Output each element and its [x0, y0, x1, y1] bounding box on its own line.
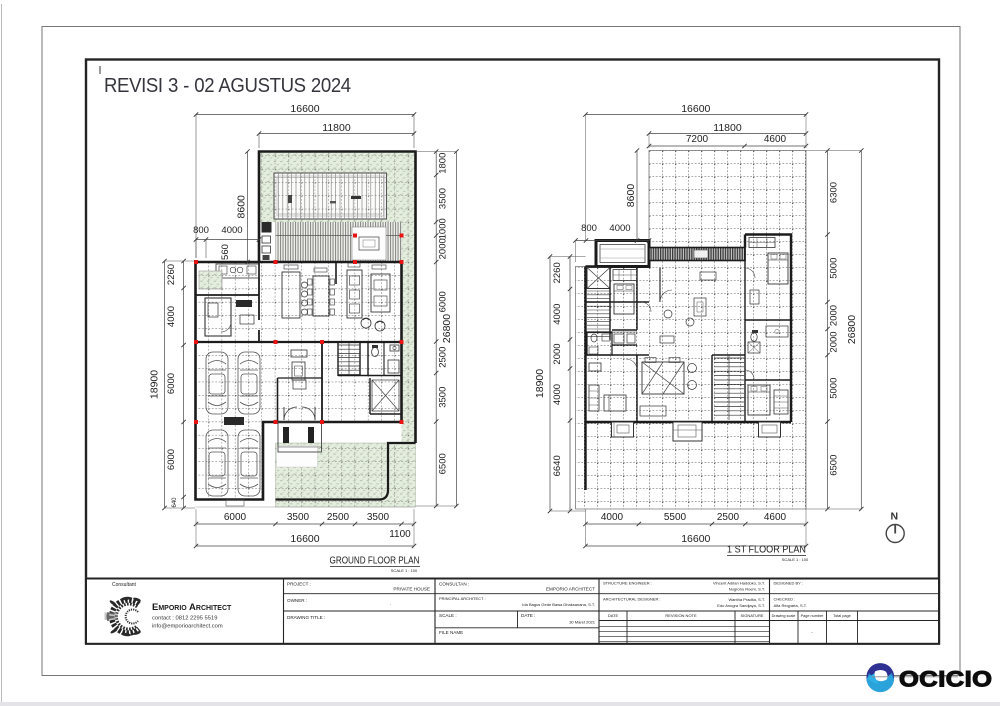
svg-text:16600: 16600	[681, 533, 710, 545]
svg-text:Nugroho Roem, S.T.: Nugroho Roem, S.T.	[729, 587, 765, 592]
svg-text:Ida Bagus Gede Bawa Dhaksanana: Ida Bagus Gede Bawa Dhaksanana, S.T.	[522, 602, 595, 607]
svg-text:SCALE :: SCALE :	[439, 613, 457, 618]
svg-text:1000: 1000	[438, 218, 449, 239]
svg-text:560: 560	[220, 244, 231, 260]
svg-text:Total page: Total page	[833, 614, 851, 618]
svg-text:18900: 18900	[149, 370, 161, 399]
svg-text:GROUND FLOOR PLAN: GROUND FLOOR PLAN	[330, 555, 420, 567]
svg-text:4000: 4000	[221, 225, 242, 236]
svg-text:info@emporioarchitect.com: info@emporioarchitect.com	[152, 624, 223, 630]
svg-text:5500: 5500	[664, 512, 687, 523]
svg-text:11800: 11800	[713, 122, 742, 134]
svg-text:ARCHITECTURAL DESIGNER :: ARCHITECTURAL DESIGNER :	[603, 597, 661, 602]
svg-text:SCALE 1 : 100: SCALE 1 : 100	[391, 568, 418, 573]
svg-text:6640: 6640	[552, 455, 563, 476]
svg-text:7200: 7200	[686, 134, 709, 145]
svg-text:Wantha Pradita, S.T.: Wantha Pradita, S.T.	[728, 597, 765, 602]
svg-text:3500: 3500	[438, 188, 449, 209]
svg-text:6000: 6000	[166, 449, 177, 470]
svg-text:800: 800	[193, 225, 209, 236]
svg-text:OWNER :: OWNER :	[287, 598, 307, 603]
svg-text:2260: 2260	[552, 262, 563, 283]
svg-text:.: .	[774, 587, 775, 592]
svg-text:1800: 1800	[438, 153, 449, 174]
svg-text:FILE NAME: FILE NAME	[439, 630, 463, 635]
svg-text:STRUCTURE ENGINEER :: STRUCTURE ENGINEER :	[603, 581, 652, 586]
svg-text:EMPORIO ARCHITECT: EMPORIO ARCHITECT	[546, 587, 595, 592]
svg-text:N: N	[891, 511, 899, 523]
svg-text:PRINCIPAL ARCHITECT :: PRINCIPAL ARCHITECT :	[439, 596, 486, 601]
svg-text:5000: 5000	[829, 378, 840, 399]
svg-text:3500: 3500	[367, 512, 390, 523]
svg-text:Drawing scale: Drawing scale	[772, 614, 796, 618]
svg-text:2000: 2000	[438, 238, 449, 259]
svg-text:Edo Anugra Sandjaya, S.T.: Edo Anugra Sandjaya, S.T.	[717, 603, 765, 608]
svg-text:8600: 8600	[625, 184, 637, 208]
svg-text:Vincent Adrian Haddoko, S.T.: Vincent Adrian Haddoko, S.T.	[713, 581, 765, 586]
svg-text:4000: 4000	[609, 223, 630, 234]
svg-text:6500: 6500	[829, 455, 840, 476]
svg-text:16600: 16600	[681, 103, 710, 115]
svg-text:2500: 2500	[717, 512, 740, 523]
svg-text:PROJECT :: PROJECT :	[287, 582, 311, 587]
svg-text:DRAWING TITLE :: DRAWING TITLE :	[287, 615, 325, 620]
svg-text:CHECKED :: CHECKED :	[774, 597, 796, 602]
svg-text:CONSULTAN :: CONSULTAN :	[439, 582, 469, 587]
svg-text:DATE: DATE	[608, 613, 619, 618]
svg-text:3500: 3500	[438, 387, 449, 408]
svg-text:PRIVATE HOUSE: PRIVATE HOUSE	[393, 587, 430, 592]
svg-text:4600: 4600	[764, 134, 787, 145]
svg-text:4600: 4600	[764, 512, 787, 523]
svg-text:1 ST FLOOR PLAN: 1 ST FLOOR PLAN	[727, 545, 806, 556]
svg-text:26800: 26800	[441, 314, 453, 343]
svg-text:2500: 2500	[327, 512, 350, 523]
svg-text:16600: 16600	[290, 103, 319, 115]
svg-text:SCALE 1 : 100: SCALE 1 : 100	[782, 557, 809, 562]
svg-text:640: 640	[172, 497, 178, 508]
svg-text:2000: 2000	[829, 331, 840, 352]
svg-text:contact : 0812 2295 5519: contact : 0812 2295 5519	[152, 616, 217, 622]
svg-text:6500: 6500	[438, 453, 449, 474]
svg-text:1100: 1100	[389, 529, 411, 540]
svg-text:4000: 4000	[166, 306, 177, 327]
svg-text:5000: 5000	[829, 258, 840, 279]
svg-text:8600: 8600	[236, 195, 248, 219]
svg-text:4000: 4000	[601, 512, 624, 523]
svg-text:800: 800	[581, 223, 597, 234]
svg-text:6000: 6000	[166, 373, 177, 394]
svg-text:OCICIO: OCICIO	[899, 667, 992, 692]
svg-text:18900: 18900	[534, 369, 546, 398]
svg-text:DATE :: DATE :	[521, 613, 535, 618]
svg-text:DESIGNED BY :: DESIGNED BY :	[774, 581, 804, 586]
svg-text:16600: 16600	[290, 533, 319, 545]
svg-text:REVISI 3 - 02 AGUSTUS 2024: REVISI 3 - 02 AGUSTUS 2024	[104, 75, 351, 97]
svg-text:6300: 6300	[829, 182, 840, 203]
svg-text:6000: 6000	[224, 512, 247, 523]
svg-text:2500: 2500	[438, 347, 449, 368]
svg-text:3500: 3500	[287, 512, 310, 523]
svg-text:Consultant: Consultant	[112, 582, 137, 588]
svg-text:Alfa Reqyarta, S.T.: Alfa Reqyarta, S.T.	[774, 603, 807, 608]
svg-text:2000: 2000	[552, 343, 563, 364]
svg-text:11800: 11800	[322, 122, 351, 134]
svg-text:REVISION NOTE: REVISION NOTE	[665, 613, 697, 618]
svg-text:6000: 6000	[438, 291, 449, 312]
svg-text:4000: 4000	[552, 304, 563, 325]
svg-text:26800: 26800	[846, 315, 858, 344]
svg-text:Page number: Page number	[801, 614, 825, 618]
svg-text:30 Maret 2021: 30 Maret 2021	[569, 620, 596, 625]
svg-text:2000: 2000	[829, 305, 840, 326]
svg-text:.: .	[390, 601, 391, 606]
svg-text:SIGNATURE: SIGNATURE	[740, 613, 763, 618]
svg-text:2260: 2260	[166, 264, 177, 285]
svg-text:4000: 4000	[552, 384, 563, 405]
